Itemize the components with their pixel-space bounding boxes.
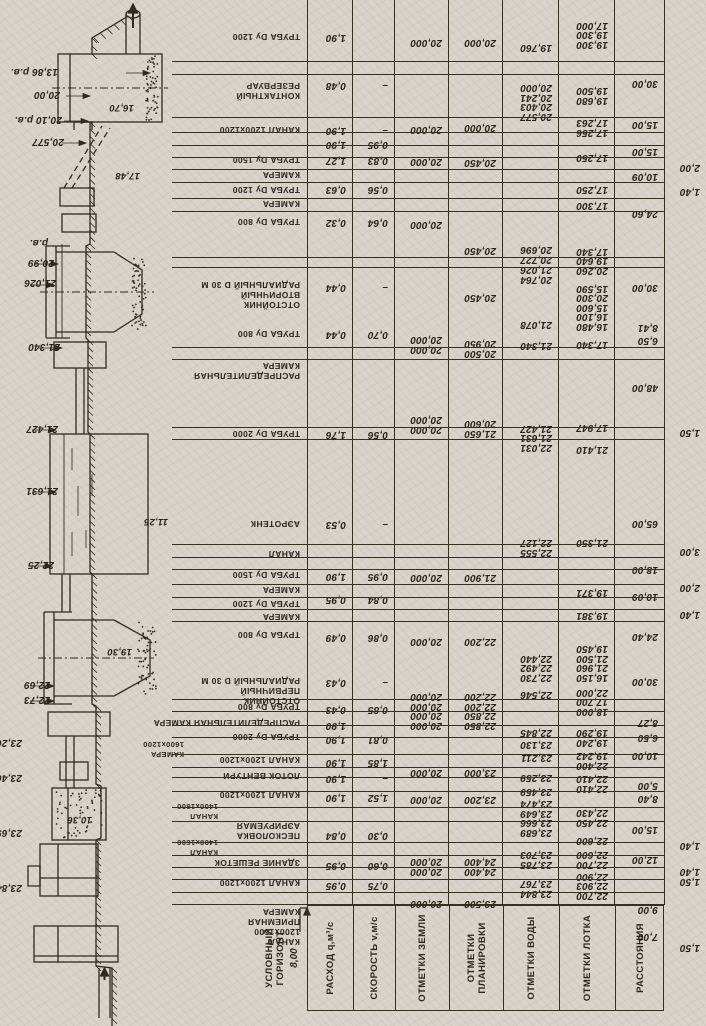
water-elevation-value: 23,649 <box>520 808 552 818</box>
ground-elevation-value: 20,000 <box>410 711 442 721</box>
distance-value-outer: 1,50 <box>680 876 700 886</box>
flow-value: 0,53 <box>326 519 346 529</box>
scanned-profile-drawing-page: УСЛОВНЫЙ ГОРИЗОНТ 8,00 РАСХОД q,м³/сСКОР… <box>0 0 706 1026</box>
grid-line <box>172 767 664 768</box>
grid-line <box>172 145 664 146</box>
distance-value-outer: 1,40 <box>680 840 700 850</box>
ground-elevation-value: 20,000 <box>410 767 442 777</box>
grid-line <box>172 157 664 158</box>
invert-elevation-value: 21,350 <box>576 537 608 547</box>
dimension-label: 17,48 <box>115 170 140 180</box>
velocity-value: 1,52 <box>368 792 388 802</box>
grid-line <box>172 754 664 755</box>
station-label: КАМЕРА <box>262 170 300 180</box>
distance-value: 15,00 <box>632 146 658 156</box>
flow-value: 0,32 <box>326 217 346 227</box>
elevation-annotation: 23,46 <box>0 772 22 782</box>
grid-line <box>352 0 353 905</box>
elevation-annotation: 22,73 <box>24 694 50 704</box>
header-row-label: ПЛАНИРОВКИ <box>477 922 488 993</box>
planning-elevation-value: 20,450 <box>464 292 496 302</box>
velocity-value: – <box>382 80 388 90</box>
planning-elevation-value: 20,450 <box>464 245 496 255</box>
invert-elevation-value: 22,600 <box>576 835 608 845</box>
water-elevation-value: 22,440 <box>520 653 552 663</box>
invert-elevation-value: 17,000 <box>576 20 608 30</box>
invert-elevation-value: 20,300 <box>576 293 608 303</box>
invert-elevation-value: 19,300 <box>576 39 608 49</box>
header-row-rashod: РАСХОД q,м³/с <box>308 906 353 1010</box>
elevation-annotation: 21,631 <box>26 485 58 495</box>
station-label: КАМЕРА <box>262 585 300 595</box>
grid-line <box>502 0 503 905</box>
elevation-annotation: 20,99 <box>28 257 54 267</box>
grid-line <box>172 257 664 258</box>
grid-line <box>172 169 664 170</box>
distance-value: 6,50 <box>638 335 658 345</box>
invert-elevation-value: 22,000 <box>576 687 608 697</box>
velocity-value: 0,70 <box>368 329 388 339</box>
flow-value: 1,90 <box>326 32 346 42</box>
inlet-flow-arrow <box>101 968 109 976</box>
distance-value: 7,00 <box>638 931 658 941</box>
invert-elevation-value: 17,300 <box>576 200 608 210</box>
invert-elevation-value: 19,500 <box>576 86 608 96</box>
table-header-box: РАСХОД q,м³/сСКОРОСТЬ v,м/сОТМЕТКИ ЗЕМЛИ… <box>307 905 664 1011</box>
flow-value: 0,63 <box>326 184 346 194</box>
grid-line <box>172 609 664 610</box>
grid-line <box>558 0 559 905</box>
distance-value: 8,40 <box>638 793 658 803</box>
distance-value: 9,00 <box>638 904 658 914</box>
water-elevation-value: 23,844 <box>520 888 552 898</box>
elevation-annotation: р.в. <box>29 237 48 247</box>
station-label: КОНТАКТНЫЙ <box>236 91 300 101</box>
distance-value-outer: 1,50 <box>680 942 700 952</box>
distance-value: 30,00 <box>632 676 658 686</box>
station-label: ТРУБА Dу 800 <box>237 329 300 339</box>
flow-value: 1,90 <box>326 773 346 783</box>
flow-value: 1,90 <box>326 792 346 802</box>
grid-line <box>172 359 664 360</box>
flow-value: 0,95 <box>326 880 346 890</box>
distance-value: 10,00 <box>632 750 658 760</box>
water-elevation-value: 23,666 <box>520 818 552 828</box>
grid-line <box>172 699 664 700</box>
grid-line <box>172 557 664 558</box>
grid-line <box>172 711 664 712</box>
station-label: ОТСТОЙНИК <box>244 300 300 310</box>
planning-elevation-value: 23,200 <box>464 794 496 804</box>
flow-value: 1,90 <box>326 571 346 581</box>
water-elevation-value: 22,730 <box>520 672 552 682</box>
water-elevation-value: 23,689 <box>520 827 552 837</box>
planning-elevation-value: 22,200 <box>464 701 496 711</box>
invert-elevation-value: 19,300 <box>576 30 608 40</box>
station-label: ОТСТОЙНИК <box>244 696 300 706</box>
header-row-label: ОТМЕТКИ <box>466 934 477 983</box>
distance-value: 65,00 <box>632 518 658 528</box>
grid-line <box>172 132 664 133</box>
invert-elevation-value: 15,600 <box>576 302 608 312</box>
header-row-label: РАСХОД q,м³/с <box>325 921 336 994</box>
distance-value: 24,60 <box>632 208 658 218</box>
grid-line <box>172 737 664 738</box>
velocity-value: 0,84 <box>368 594 388 604</box>
water-elevation-value: 22,845 <box>520 727 552 737</box>
station-label: АЭРИРУЕМАЯ <box>236 821 300 831</box>
station-label: РАСПРЕДЕЛИТЕЛЬНАЯ <box>194 371 300 381</box>
planning-elevation-value: 22,850 <box>464 711 496 721</box>
grid-line <box>172 569 664 570</box>
elevation-annotation: 23,26 <box>0 737 22 747</box>
station-label: ТРУБА Dу 800 <box>237 630 300 640</box>
ground-elevation-value: 20,000 <box>410 415 442 425</box>
flow-value: 1,76 <box>326 429 346 439</box>
water-elevation-value: 21,427 <box>520 423 552 433</box>
station-label: РАДИАЛЬНЫЙ D 30 М <box>201 676 300 686</box>
elevation-annotation: 20,00 <box>34 89 60 99</box>
flow-value: 0,44 <box>326 329 346 339</box>
velocity-value: 0,64 <box>368 217 388 227</box>
ground-elevation-value: 20,000 <box>410 857 442 867</box>
velocity-value: – <box>382 519 388 529</box>
invert-elevation-value: 19,680 <box>576 95 608 105</box>
invert-elevation-value: 15,590 <box>576 283 608 293</box>
distance-value: 30,00 <box>632 282 658 292</box>
grid-line <box>172 347 664 348</box>
flow-value: 0,48 <box>326 80 346 90</box>
water-elevation-value: 20,000 <box>520 83 552 93</box>
elevation-annotation: 13,86 р.в. <box>10 66 58 76</box>
invert-elevation-value: 17,340 <box>576 246 608 256</box>
grid-line <box>172 182 664 183</box>
grid-line <box>394 0 395 905</box>
invert-elevation-value: 19,371 <box>576 587 608 597</box>
water-elevation-value: 23,130 <box>520 739 552 749</box>
planning-elevation-value: 21,650 <box>464 428 496 438</box>
elevation-annotation: 21,427 <box>26 423 58 433</box>
invert-elevation-value: 19,240 <box>576 737 608 747</box>
flow-value: 0,43 <box>326 704 346 714</box>
station-label: КАНАЛ 1200х1200 <box>219 755 300 765</box>
aeration-tank-outline <box>50 434 148 574</box>
invert-elevation-value: 17,250 <box>576 184 608 194</box>
velocity-value: 0,95 <box>368 571 388 581</box>
water-elevation-value: 22,492 <box>520 663 552 673</box>
ground-elevation-value: 20,000 <box>410 701 442 711</box>
header-row-planirovki: ОТМЕТКИПЛАНИРОВКИ <box>449 906 503 1010</box>
grid-line <box>172 777 664 778</box>
header-row-rasstoyaniya: РАССТОЯНИЯ <box>615 906 665 1010</box>
ground-elevation-value: 20,000 <box>410 424 442 434</box>
distance-value-outer: 3,00 <box>680 546 700 556</box>
station-label: КАНАЛ <box>190 811 218 821</box>
elevation-annotation: 21,340 <box>28 341 60 351</box>
invert-elevation-value: 22,450 <box>576 817 608 827</box>
station-label: ТРУБА Dу 800 <box>237 217 300 227</box>
ground-elevation-value: 20,000 <box>410 692 442 702</box>
station-label: КАМЕРА <box>262 907 300 917</box>
header-row-lotka: ОТМЕТКИ ЛОТКА <box>559 906 615 1010</box>
annotation-leaders <box>28 70 150 703</box>
flow-value: 0,44 <box>326 282 346 292</box>
velocity-value: – <box>382 282 388 292</box>
grid-line <box>172 544 664 545</box>
grid-line <box>172 427 664 428</box>
planning-elevation-value: 20,450 <box>464 157 496 167</box>
water-elevation-value: 20,241 <box>520 92 552 102</box>
water-elevation-value: 22,546 <box>520 689 552 699</box>
distance-value: 15,00 <box>632 824 658 834</box>
ground-elevation-value: 20,000 <box>410 344 442 354</box>
grates-building-outline <box>40 844 98 896</box>
velocity-value: 0,81 <box>368 734 388 744</box>
velocity-value: 0,56 <box>368 184 388 194</box>
water-elevation-value: 23,767 <box>520 879 552 889</box>
distance-value-outer: 1,40 <box>680 609 700 619</box>
invert-elevation-value: 19,242 <box>576 750 608 760</box>
header-row-label: ОТМЕТКИ ЗЕМЛИ <box>417 914 428 1001</box>
distance-value: 5,00 <box>638 780 658 790</box>
station-label: ПЕРВИЧНЫЙ <box>240 686 300 696</box>
grid-line <box>172 198 664 199</box>
invert-elevation-value: 22,903 <box>576 881 608 891</box>
dimension-label: 19,30 <box>107 646 132 656</box>
invert-elevation-value: 19,381 <box>576 610 608 620</box>
grid-line <box>172 725 664 726</box>
water-elevation-value: 20,403 <box>520 102 552 112</box>
velocity-value: 0,56 <box>368 429 388 439</box>
grid-line <box>172 267 664 268</box>
dimension-label: 10,36 <box>67 814 92 824</box>
ground-elevation-value: 20,000 <box>410 219 442 229</box>
station-label: КАМЕРА <box>262 199 300 209</box>
planning-elevation-value: 23,000 <box>464 767 496 777</box>
grid-line <box>172 821 664 822</box>
station-label: РАСПРЕДЕЛИТЕЛЬНАЯ КАМЕРА <box>153 718 300 728</box>
grid-line <box>172 211 664 212</box>
station-label: АЭРОТЕНК <box>250 519 300 529</box>
flow-value: 1,90 <box>326 757 346 767</box>
planning-elevation-value: 20,500 <box>464 348 496 358</box>
grid-line <box>172 842 664 843</box>
flow-value: 0,49 <box>326 632 346 642</box>
elevation-annotation: 20,10 р.в. <box>14 114 62 124</box>
ground-elevation-value: 20,000 <box>410 636 442 646</box>
ground-elevation-value: 20,000 <box>410 37 442 47</box>
elevation-annotation: 20,577 <box>32 136 64 146</box>
distance-value: 30,00 <box>632 78 658 88</box>
station-label: ТРУБА Dу 1200 <box>232 32 300 42</box>
elevation-annotation: 22,69 <box>24 679 50 689</box>
dimension-label: 16,70 <box>109 102 134 112</box>
water-elevation-value: 20,764 <box>520 274 552 284</box>
grid-line <box>448 0 449 905</box>
grid-line <box>172 807 664 808</box>
grid-line <box>172 879 664 880</box>
distribution-chamber2-outline <box>54 342 106 368</box>
outfall-flow-arrow <box>129 4 138 13</box>
velocity-value: – <box>382 773 388 783</box>
grid-line <box>172 621 664 622</box>
station-label: ТРУБА Dу 1200 <box>232 185 300 195</box>
station-label: КАНАЛ 1200х1200 <box>219 125 300 135</box>
planning-elevation-value: 22,200 <box>464 636 496 646</box>
planning-elevation-value: 20,000 <box>464 122 496 132</box>
water-elevation-value: 20,727 <box>520 254 552 264</box>
station-label: РАДИАЛЬНЫЙ D 30 М <box>201 280 300 290</box>
water-elevation-value: 22,127 <box>520 538 552 548</box>
ground-elevation-value: 20,000 <box>410 794 442 804</box>
elevation-annotation: 23,84 <box>0 882 22 892</box>
header-row-label: СКОРОСТЬ v,м/с <box>369 916 380 999</box>
grid-line <box>664 0 665 905</box>
invert-elevation-value: 21,410 <box>576 444 608 454</box>
distance-value: 24,40 <box>632 631 658 641</box>
grid-line <box>172 597 664 598</box>
water-elevation-value: 20,696 <box>520 245 552 255</box>
station-label: РЕЗЕРВУАР <box>246 81 300 91</box>
invert-elevation-value: 19,450 <box>576 644 608 654</box>
grid-line <box>614 0 615 905</box>
grid-line <box>172 892 664 893</box>
water-elevation-value: 22,031 <box>520 442 552 452</box>
distance-value-outer: 2,00 <box>680 162 700 172</box>
distance-value-outer: 1,40 <box>680 186 700 196</box>
distance-value: 15,00 <box>632 119 658 129</box>
header-row-zemli: ОТМЕТКИ ЗЕМЛИ <box>395 906 449 1010</box>
grid-line <box>172 867 664 868</box>
flow-value: 1,90 <box>326 125 346 135</box>
velocity-value: – <box>382 125 388 135</box>
planning-elevation-value: 22,200 <box>464 692 496 702</box>
velocity-value: 0,60 <box>368 860 388 870</box>
station-label: ПРИЕМНАЯ <box>248 917 300 927</box>
invert-elevation-value: 16,150 <box>576 672 608 682</box>
station-label: ТРУБА Dу 1200 <box>232 599 300 609</box>
invert-elevation-value: 17,263 <box>576 118 608 128</box>
grid-line <box>172 74 664 75</box>
velocity-value: 1,85 <box>368 757 388 767</box>
velocity-value: – <box>382 677 388 687</box>
grid-line <box>172 904 664 905</box>
velocity-value: 0,86 <box>368 632 388 642</box>
elevation-annotation: 22,25 <box>28 559 54 569</box>
station-label: ПЕСКОЛОВКА <box>236 831 300 841</box>
flow-value: 1,90 <box>326 734 346 744</box>
station-label: КАНАЛ <box>268 937 300 947</box>
invert-elevation-value: 22,430 <box>576 808 608 818</box>
grid-line <box>172 117 664 118</box>
water-elevation-value: 19,760 <box>520 42 552 52</box>
invert-elevation-value: 22,410 <box>576 774 608 784</box>
elevation-annotation: 21,026 <box>24 277 56 287</box>
ground-elevation-value: 20,000 <box>410 572 442 582</box>
profile-drawing-landscape: УСЛОВНЫЙ ГОРИЗОНТ 8,00 РАСХОД q,м³/сСКОР… <box>0 0 706 1026</box>
header-row-skorost: СКОРОСТЬ v,м/с <box>353 906 395 1010</box>
velocity-value: 0,75 <box>368 880 388 890</box>
planning-elevation-value: 24,400 <box>464 857 496 867</box>
grid-line <box>172 439 664 440</box>
header-row-vody: ОТМЕТКИ ВОДЫ <box>503 906 559 1010</box>
siphon-pipe <box>64 126 110 188</box>
invert-elevation-value: 21,960 <box>576 663 608 673</box>
header-row-label: ОТМЕТКИ ВОДЫ <box>526 916 537 999</box>
distance-value-outer: 1,40 <box>680 866 700 876</box>
station-label: ТРУБА Dу 2000 <box>232 429 300 439</box>
ground-hatching <box>86 16 133 1026</box>
station-label: ВТОРИЧНЫЙ <box>241 290 300 300</box>
distance-value: 48,00 <box>632 382 658 392</box>
distance-value-outer: 1,50 <box>680 427 700 437</box>
flow-value: 0,95 <box>326 860 346 870</box>
elevation-annotation: 23,69 <box>0 827 22 837</box>
grid-line <box>172 584 664 585</box>
invert-elevation-value: 21,500 <box>576 653 608 663</box>
velocity-value: 0,85 <box>368 704 388 714</box>
distance-value-outer: 2,00 <box>680 582 700 592</box>
distance-value: 8,41 <box>638 322 658 332</box>
station-label: 1600х1200 <box>143 739 184 749</box>
grid-line <box>172 791 664 792</box>
chamber-outline2 <box>60 188 94 206</box>
water-elevation-value: 21,631 <box>520 433 552 443</box>
station-label: ТРУБА Dу 1500 <box>232 570 300 580</box>
flow-value: 0,84 <box>326 830 346 840</box>
water-elevation-value: 21,078 <box>520 319 552 329</box>
invert-elevation-value: 22,400 <box>576 760 608 770</box>
water-elevation-value: 21,340 <box>520 340 552 350</box>
station-label: 1200х1600 <box>254 927 300 937</box>
ground-elevation-value: 20,000 <box>410 335 442 345</box>
flow-value: 0,95 <box>326 594 346 604</box>
grid-line <box>172 855 664 856</box>
invert-elevation-value: 16,480 <box>576 321 608 331</box>
planning-elevation-value: 20,000 <box>464 37 496 47</box>
grid-line <box>172 61 664 62</box>
header-row-label: ОТМЕТКИ ЛОТКА <box>582 915 593 1001</box>
velocity-value: 0,30 <box>368 830 388 840</box>
planning-elevation-value: 21,900 <box>464 572 496 582</box>
water-elevation-value: 22,555 <box>520 547 552 557</box>
grid-line <box>307 0 308 905</box>
concrete-dotted-fill <box>56 55 159 838</box>
station-label: КАМЕРА <box>262 361 300 371</box>
invert-elevation-value: 16,100 <box>576 312 608 322</box>
distance-value: 10,09 <box>632 171 658 181</box>
flow-value: 0,43 <box>326 677 346 687</box>
dimension-label: 11,25 <box>144 516 168 526</box>
